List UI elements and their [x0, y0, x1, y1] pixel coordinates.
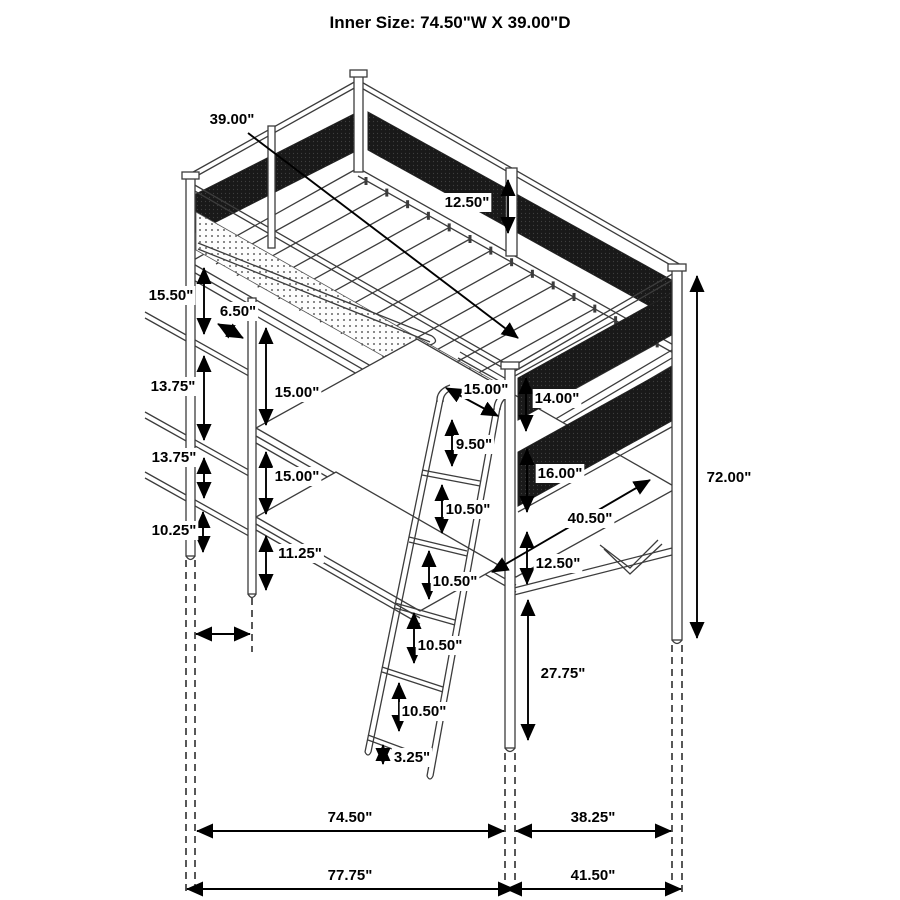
dim-label-end-outer-depth: 41.50" [571, 867, 616, 884]
dim-arrow-shelf-offset-depth [218, 324, 243, 338]
dim-label-ladder-bottom-offset: 3.25" [394, 749, 430, 766]
page-title: Inner Size: 74.50"W X 39.00"D [330, 13, 571, 32]
dim-label-end-inner-depth: 38.25" [571, 809, 616, 826]
side-shelves [145, 312, 256, 540]
shelf-inner-leg [248, 298, 256, 594]
front-post [505, 364, 515, 748]
ladder-rung [382, 667, 443, 692]
dim-label-shelf-gap-lower: 13.75" [152, 449, 197, 466]
dim-label-desk-floor-clearance: 27.75" [541, 665, 586, 682]
dim-label-bed-inner-width: 74.50" [328, 809, 373, 826]
dim-label-bottom-shelf-gap: 10.25" [152, 522, 197, 539]
dim-label-desktop-width: 40.50" [568, 510, 613, 527]
diagram-page: Inner Size: 74.50"W X 39.00"D 39.00" 12.… [0, 0, 900, 900]
dim-label-inner-depth: 39.00" [210, 111, 255, 128]
mesh-band-right-face [368, 112, 677, 321]
dim-label-lower-shelf-height: 11.25" [278, 545, 322, 562]
dim-label-desk-to-bunk-left: 15.00" [275, 384, 320, 401]
dim-label-rung-spacing-4: 10.50" [402, 703, 447, 720]
dim-label-desk-to-shelf-left: 15.00" [275, 468, 320, 485]
dim-label-bed-outer-width: 77.75" [328, 867, 373, 884]
floor-projection-lines [186, 560, 682, 893]
left-mid-guard-post [268, 126, 275, 248]
right-post [672, 266, 682, 640]
loft-bed-dimension-diagram: Inner Size: 74.50"W X 39.00"D 39.00" 12.… [0, 0, 900, 900]
dim-label-desk-shelf-gap: 12.50" [536, 555, 581, 572]
dim-label-panel-upper-height: 14.00" [535, 390, 580, 407]
dim-label-panel-lower-height: 16.00" [538, 465, 583, 482]
dim-label-overall-height: 72.00" [707, 469, 752, 486]
dim-label-rail-to-post: 15.00" [464, 381, 509, 398]
dim-label-guardrail-height: 12.50" [445, 194, 490, 211]
back-post [354, 72, 363, 172]
desk-brace [600, 540, 662, 574]
left-post [186, 174, 195, 556]
dim-label-shelf-gap-upper: 13.75" [151, 378, 196, 395]
dim-label-rung-spacing-2: 10.50" [433, 573, 478, 590]
dim-label-rung-spacing-1: 10.50" [446, 501, 491, 518]
dim-label-ladder-top-spacing: 9.50" [456, 436, 492, 453]
dim-label-rung-spacing-3: 10.50" [418, 637, 463, 654]
dim-label-top-shelf-gap: 15.50" [149, 287, 194, 304]
dim-label-shelf-offset-depth: 6.50" [220, 303, 256, 320]
